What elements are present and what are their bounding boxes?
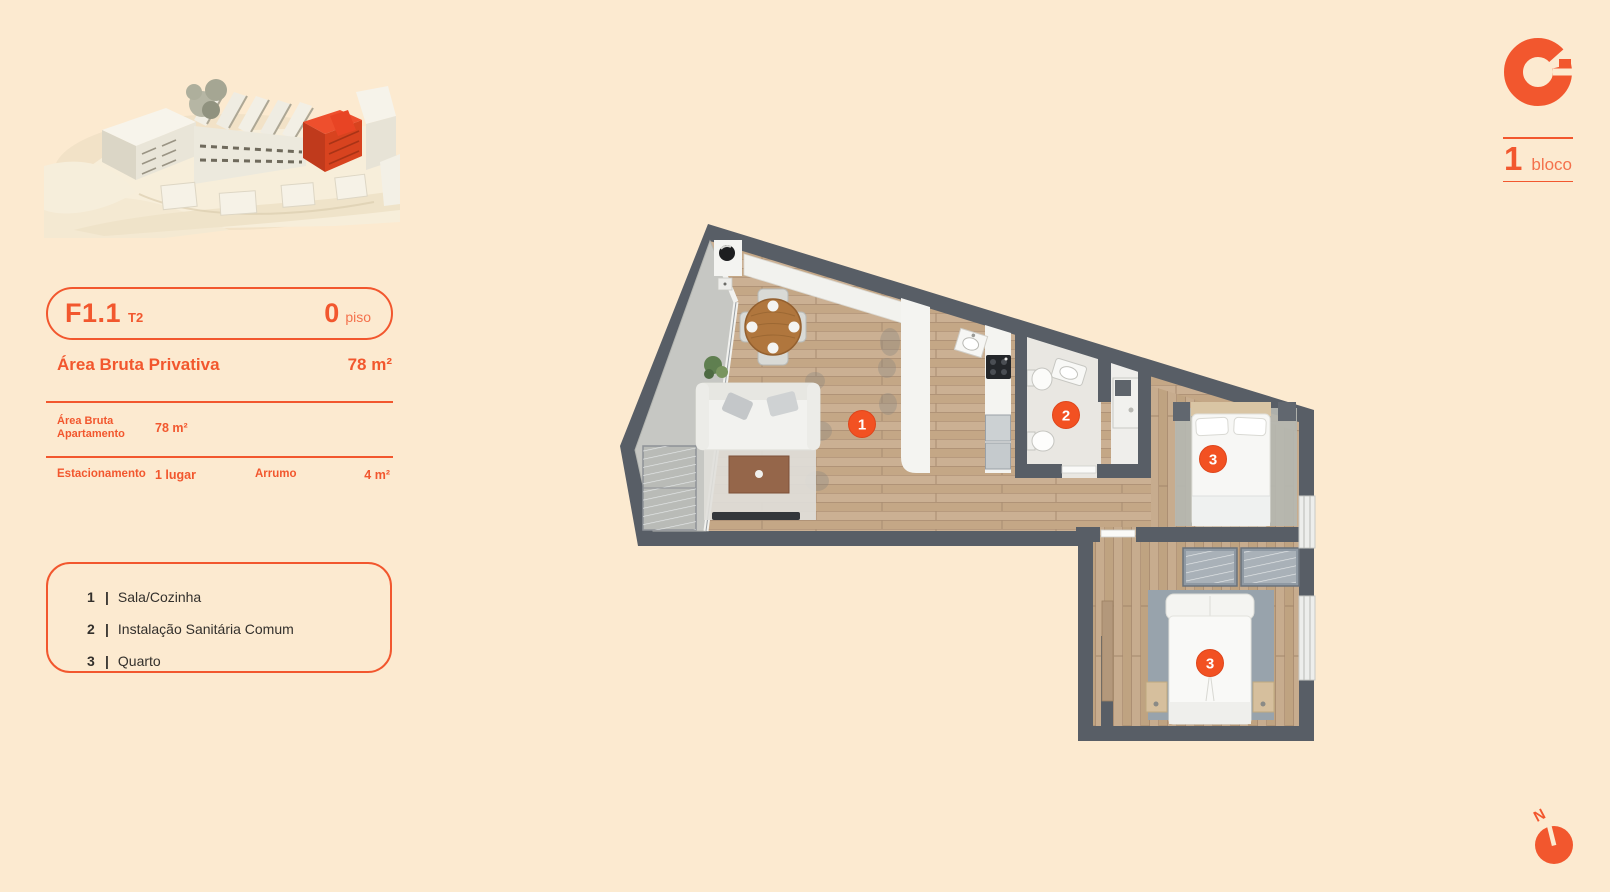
divider: [46, 456, 393, 458]
svg-text:3: 3: [1206, 656, 1214, 673]
kitchen-appliances: [985, 325, 1011, 473]
divider: [46, 401, 393, 403]
page: F1.1 T2 0 piso Área Bruta Privativa 78 m…: [0, 0, 1610, 892]
coffee-table: [729, 456, 789, 493]
sofa: [696, 383, 820, 450]
marker-3a: 3: [1200, 446, 1227, 473]
svg-text:3: 3: [1209, 452, 1217, 469]
tv: [712, 512, 800, 520]
apartment-area-row: Área Bruta Apartamento 78 m²: [57, 413, 390, 447]
bedroom-2-door-leaf: [1102, 601, 1113, 701]
floor-number: 0: [324, 298, 339, 329]
unit-code: F1.1: [65, 298, 121, 329]
c-logo-icon: [1503, 38, 1573, 106]
badge-divider-bottom: [1503, 181, 1573, 183]
storage-value: 4 m²: [364, 468, 390, 482]
trees: [186, 79, 227, 119]
block-badge: 1 bloco: [1503, 139, 1573, 181]
floor-label: piso: [345, 309, 371, 325]
gross-private-area-row: Área Bruta Privativa 78 m²: [57, 355, 392, 375]
svg-text:1: 1: [858, 417, 866, 434]
pantry-column: [901, 298, 930, 473]
legend-item-instalacao: 2 | Instalação Sanitária Comum: [87, 621, 390, 637]
toilet: [1027, 431, 1054, 451]
floorplan: 1 2 3 3: [610, 196, 1320, 752]
room-legend: 1 | Sala/Cozinha 2 | Instalação Sanitári…: [46, 562, 392, 673]
parking-value: 1 lugar: [155, 468, 196, 482]
gross-private-area-value: 78 m²: [348, 355, 392, 375]
gross-private-area-label: Área Bruta Privativa: [57, 355, 220, 375]
apartment-area-label: Área Bruta Apartamento: [57, 415, 125, 441]
parking-label: Estacionamento: [57, 468, 146, 480]
compass-north-label: N: [1531, 806, 1549, 826]
site-model-render: [44, 34, 400, 238]
marker-3b: 3: [1197, 650, 1224, 677]
marker-1: 1: [849, 411, 876, 438]
unit-typology: T2: [128, 310, 143, 325]
block-label: bloco: [1531, 155, 1572, 175]
svg-text:2: 2: [1062, 408, 1070, 425]
compass-needle-icon: [1535, 826, 1573, 864]
apartment-area-value: 78 m²: [155, 421, 188, 435]
marker-2: 2: [1053, 402, 1080, 429]
unit-header: F1.1 T2 0 piso: [46, 287, 393, 340]
wardrobes: [1183, 548, 1299, 586]
brand-block: 1 bloco: [1503, 38, 1573, 182]
parking-storage-row: Estacionamento 1 lugar Arrumo 4 m²: [57, 468, 390, 484]
bedroom-1: [1173, 402, 1297, 526]
compass: N: [1530, 802, 1576, 866]
legend-item-quarto: 3 | Quarto: [87, 653, 390, 669]
legend-item-sala: 1 | Sala/Cozinha: [87, 589, 390, 605]
storage-label: Arrumo: [255, 468, 297, 480]
shutter-window: [643, 446, 696, 530]
block-number: 1: [1504, 142, 1522, 176]
